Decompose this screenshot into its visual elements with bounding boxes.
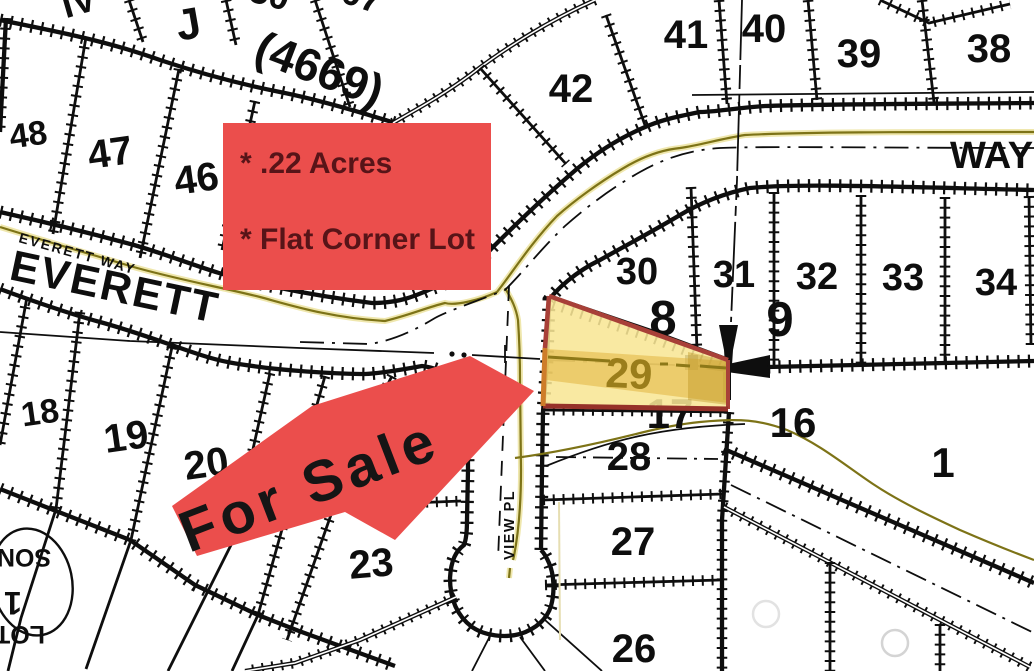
svg-text:31: 31	[713, 254, 755, 296]
svg-text:1: 1	[4, 585, 22, 621]
svg-text:46: 46	[171, 154, 221, 204]
svg-text:29: 29	[604, 349, 653, 398]
svg-text:VIEW PL: VIEW PL	[502, 490, 518, 560]
svg-text:38: 38	[967, 27, 1012, 71]
svg-text:27: 27	[611, 520, 656, 564]
svg-text:23: 23	[347, 540, 395, 588]
svg-text:34: 34	[975, 262, 1017, 304]
svg-text:30: 30	[616, 251, 658, 293]
svg-text:* .22 Acres: * .22 Acres	[240, 147, 392, 180]
svg-text:40: 40	[742, 7, 787, 51]
svg-text:47: 47	[85, 128, 135, 178]
svg-text:26: 26	[612, 627, 657, 671]
svg-text:28: 28	[607, 435, 652, 479]
svg-text:41: 41	[664, 13, 709, 57]
svg-text:19: 19	[101, 412, 151, 462]
svg-text:48: 48	[7, 114, 50, 157]
svg-text:1: 1	[931, 439, 954, 486]
svg-text:16: 16	[770, 399, 817, 446]
svg-text:42: 42	[549, 67, 594, 111]
svg-text:32: 32	[796, 256, 838, 298]
svg-text:SON: SON	[0, 543, 51, 571]
svg-text:18: 18	[19, 392, 62, 435]
svg-text:WAY: WAY	[950, 135, 1033, 177]
svg-text:LOT: LOT	[0, 620, 45, 648]
svg-text:* Flat Corner Lot: * Flat Corner Lot	[240, 223, 475, 256]
svg-text:39: 39	[837, 32, 882, 76]
svg-text:9: 9	[766, 293, 793, 347]
svg-text:33: 33	[882, 257, 924, 299]
